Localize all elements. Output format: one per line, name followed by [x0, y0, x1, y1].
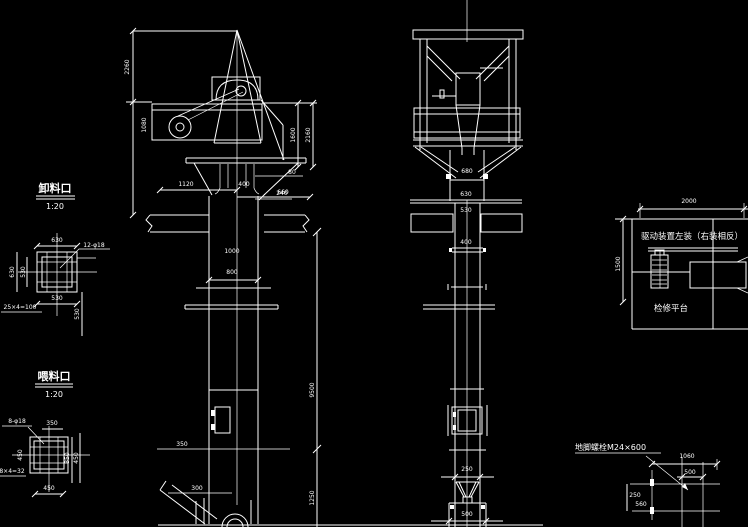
dim-text: 630: [51, 237, 63, 244]
dim-text: 250: [629, 492, 641, 499]
anchor-bolt-detail: 地脚螺栓M24×600 1060 500 250 560: [575, 442, 720, 527]
pitch-note: 25×4=100: [4, 304, 37, 311]
dim-text: 2160: [305, 127, 312, 142]
dim-text: 660: [277, 189, 289, 196]
dim-text: 2000: [681, 198, 696, 205]
detail-title: 喂料口: [38, 369, 71, 383]
front-height-dimension: 9500 1250: [309, 228, 321, 527]
elevator-front-view: 2260 1080 1600 2160 80 240 1120 400 660: [124, 28, 321, 527]
dim-text: 560: [635, 501, 647, 508]
dim-text: 400: [460, 239, 472, 246]
dim-text: 1500: [615, 256, 622, 271]
platform-label: 检修平台: [654, 303, 688, 314]
head-frame: [413, 0, 523, 150]
dim-text: 630: [9, 266, 16, 278]
dim-text: 250: [461, 466, 473, 473]
dim-text: 80: [288, 169, 296, 176]
cad-drawing: 2260 1080 1600 2160 80 240 1120 400 660: [0, 0, 748, 527]
dim-text: 1120: [178, 181, 193, 188]
detail-title: 卸料口: [39, 181, 72, 195]
dim-text: 300: [191, 485, 203, 492]
dim-text: 530: [74, 308, 81, 320]
dim-text: 1250: [309, 490, 316, 505]
dim-text: 350: [176, 441, 188, 448]
dim-text: 680: [461, 168, 473, 175]
dim-text: 530: [20, 266, 27, 278]
floor-slab-side: [411, 214, 522, 232]
dim-text: 500: [461, 511, 473, 518]
elevator-side-view: 680 630 530 400: [410, 0, 523, 527]
head-casing-side: 680 630 530: [410, 150, 522, 214]
feed-opening-detail: 喂料口 1:20 8-φ18 350 450 8×4=32 450 350 45…: [0, 369, 90, 497]
detail-scale: 1:20: [45, 390, 63, 399]
discharge-funnel: 250: [441, 466, 494, 503]
dim-text: 530: [460, 207, 472, 214]
drive-unit: [152, 86, 262, 140]
top-mast: [214, 30, 284, 200]
dim-text: 350: [46, 420, 58, 427]
dim-text: 450: [17, 449, 24, 461]
dim-text: 1600: [290, 127, 297, 142]
dim-text: 400: [238, 181, 250, 188]
cad-canvas: 2260 1080 1600 2160 80 240 1120 400 660: [0, 0, 748, 527]
dim-text: 450: [73, 452, 80, 464]
discharge-opening-detail: 卸料口 1:20 630 12-φ18 630 530 530 25×4=100…: [1, 181, 110, 336]
dim-text: 9500: [309, 382, 316, 397]
dim-text: 530: [51, 295, 63, 302]
floor-slab-front: [146, 215, 309, 232]
dim-text: 2260: [124, 59, 131, 74]
boot-front: [160, 481, 251, 527]
head-section: [186, 77, 306, 195]
dim-text: 1000: [224, 248, 239, 255]
dim-text: 630: [460, 191, 472, 198]
inlet-funnel: [432, 68, 503, 155]
access-door-side: [448, 405, 487, 450]
pitch-note: 8×4=32: [0, 468, 25, 475]
dim-text: 500: [684, 469, 696, 476]
dim-text: 800: [226, 269, 238, 276]
dim-text: 1080: [141, 117, 148, 132]
bolt-note: 8-φ18: [8, 418, 26, 425]
gear-motor-icon: [651, 250, 668, 288]
dim-text: 450: [43, 485, 55, 492]
detail-scale: 1:20: [46, 202, 64, 211]
drive-note: 驱动装置左装（右装相反）: [641, 231, 743, 242]
bolt-note: 12-φ18: [83, 242, 105, 249]
dim-text: 350: [64, 452, 71, 464]
casing-front: 1000 800: [157, 196, 290, 524]
drive-arrangement-detail: 2000 驱动装置左装（右装相反） 检修平台 1500: [615, 198, 748, 329]
casing-side: 400: [423, 200, 495, 527]
access-door-front: 350 300: [168, 407, 232, 493]
anchor-note: 地脚螺栓M24×600: [575, 442, 646, 452]
